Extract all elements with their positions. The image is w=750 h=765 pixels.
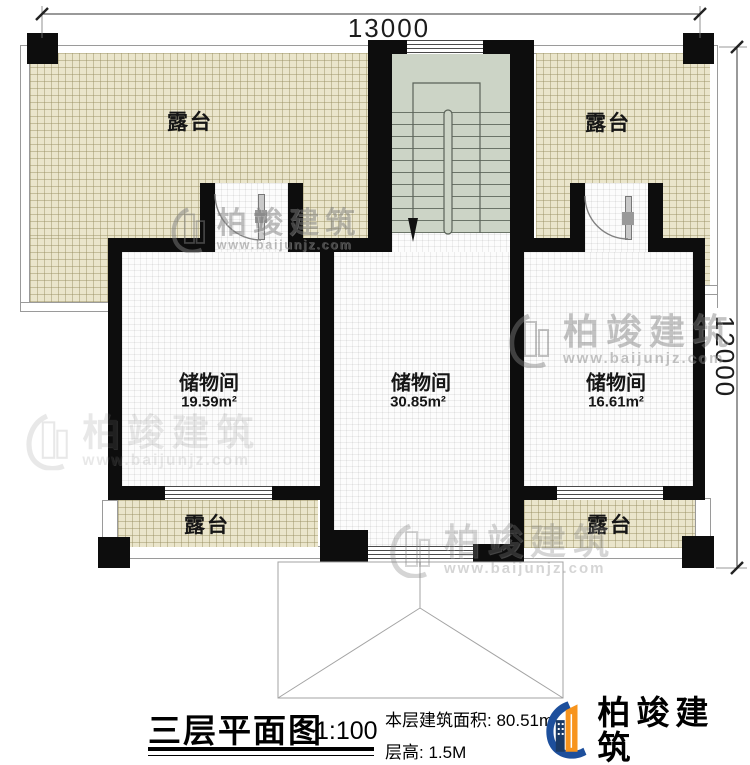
wall (320, 530, 368, 562)
stairwell-wall-top-b (483, 40, 510, 54)
column (27, 33, 58, 64)
title-underline-thin (148, 755, 374, 756)
brand-name: 柏竣建筑 (597, 696, 750, 765)
room-middle-name: 储物间 (391, 367, 451, 396)
wall-right-exterior (693, 238, 705, 500)
watermark-url: www.baijunjz.com (563, 350, 735, 367)
brand-text: 柏竣建筑 www.baijunjz.com (597, 696, 750, 765)
porch-roof-hips (278, 562, 563, 698)
watermark-url: www.baijunjz.com (82, 452, 261, 470)
parapet-line (20, 302, 110, 303)
watermark-name: 柏竣建筑 (444, 523, 616, 561)
wall (272, 486, 334, 500)
terrace-top-left-side (30, 238, 108, 302)
parapet-line (717, 45, 718, 308)
watermark-building-icon (168, 206, 210, 253)
room-left-name: 储物间 (179, 367, 239, 396)
watermark-name: 柏竣建筑 (563, 313, 735, 351)
parapet-line (102, 500, 118, 501)
wall (663, 486, 705, 500)
watermark-building-icon (386, 522, 436, 578)
door-jamb (570, 183, 585, 252)
floor-area-label: 本层建筑面积: (385, 711, 492, 730)
watermark-url: www.baijunjz.com (217, 238, 361, 252)
title-underline-thick (148, 747, 374, 751)
parapet-line (20, 45, 21, 312)
watermark-url: www.baijunjz.com (444, 560, 616, 577)
stairwell-wall-left (368, 40, 392, 252)
window-bottom-right (557, 486, 663, 500)
terrace-label-top-right: 露台 (585, 107, 631, 137)
parapet-line (102, 558, 330, 559)
room-right-name: 储物间 (586, 367, 646, 396)
brand-logo: 柏竣建筑 www.baijunjz.com (538, 696, 750, 765)
floor-area-line: 本层建筑面积: 80.51m² (385, 706, 559, 731)
porch-roof-outline (278, 562, 563, 698)
floor-height-value: 1.5M (428, 743, 466, 762)
window-bottom-left (165, 486, 272, 500)
dimension-top: 13000 (329, 15, 449, 41)
stair-steps (392, 112, 510, 233)
wall-left-middle-shared (320, 238, 334, 548)
watermark-building-icon (505, 312, 555, 368)
wall-middle-right-shared (510, 238, 524, 562)
brand-logo-icon (538, 696, 591, 764)
terrace-label-bottom-left: 露台 (184, 509, 230, 539)
watermark-building-icon (22, 412, 74, 470)
floor-height-label: 层高: (385, 743, 424, 762)
room-right-area: 16.61m² (588, 394, 644, 411)
watermark-name: 柏竣建筑 (82, 413, 261, 452)
door-jamb (648, 183, 663, 252)
drawing-scale: 1:100 (315, 717, 378, 746)
door-handle-right (622, 212, 634, 225)
watermark: 柏竣建筑 www.baijunjz.com (505, 312, 735, 368)
wall (510, 486, 557, 500)
column (98, 537, 130, 568)
watermark: 柏竣建筑 www.baijunjz.com (22, 412, 261, 470)
parapet-line (20, 311, 110, 312)
drawing-title: 三层平面图 (148, 704, 323, 752)
room-left-area: 19.59m² (181, 394, 237, 411)
watermark-name: 柏竣建筑 (217, 206, 361, 238)
column (682, 536, 714, 568)
watermark: 柏竣建筑 www.baijunjz.com (386, 522, 616, 578)
stairwell-wall-right (510, 40, 534, 252)
floor-plan: 13000 12000 露台 露台 露台 露台 储物间 19.59m² 储物间 … (0, 0, 750, 765)
door-recess-right (585, 183, 648, 252)
terrace-label-top-left: 露台 (167, 106, 213, 136)
wall (108, 486, 165, 500)
column (683, 33, 714, 64)
room-middle-area: 30.85m² (390, 394, 446, 411)
watermark: 柏竣建筑 www.baijunjz.com (168, 206, 361, 253)
floor-height-line: 层高: 1.5M (385, 738, 466, 763)
